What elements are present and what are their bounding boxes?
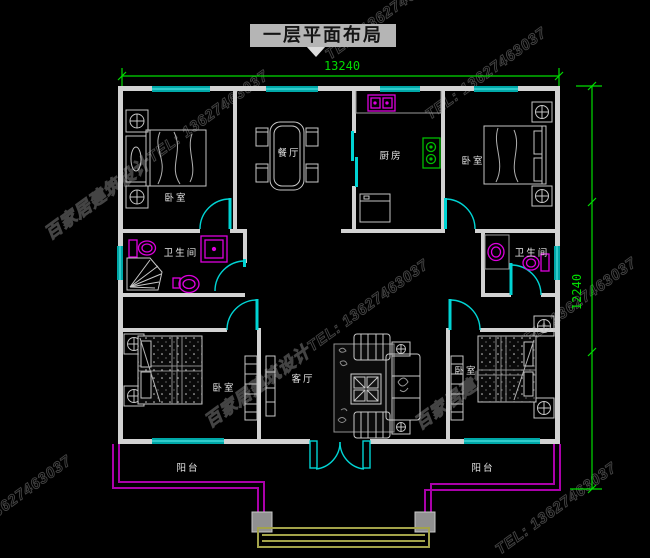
toilet	[129, 240, 156, 257]
corner-shower	[127, 258, 162, 290]
label-dining: 餐厅	[277, 147, 300, 159]
shower-box	[201, 236, 227, 262]
label-bathroom-left: 卫生间	[164, 247, 199, 259]
side-table-bottom	[392, 420, 410, 434]
bedroom-tr-furniture	[484, 102, 552, 206]
bathroom-left-fixtures	[127, 236, 227, 293]
window-bottom-left	[152, 438, 224, 444]
window-bath-right	[554, 246, 560, 280]
kitchen-stove	[423, 138, 440, 168]
door-kitchen-sliding	[351, 131, 358, 187]
label-bedroom-tl: 卧室	[164, 192, 187, 204]
label-bedroom-br: 卧室	[454, 365, 477, 377]
title-pointer-icon	[306, 46, 326, 57]
label-bedroom-bl: 卧室	[212, 382, 235, 394]
kitchen-fridge	[360, 194, 390, 222]
window-top-1	[152, 86, 210, 92]
label-balcony-right: 阳台	[471, 462, 494, 474]
coffee-table	[351, 374, 381, 404]
watermark-phone: TEL: 13627463037	[0, 452, 75, 551]
kitchen-sink	[368, 95, 395, 111]
door-bedroom-bl	[227, 299, 259, 330]
dimension-height-label: 12240	[570, 274, 584, 310]
step-lines	[258, 528, 429, 547]
label-bedroom-tr: 卧室	[461, 155, 484, 167]
window-top-3	[380, 86, 420, 92]
label-balcony-left: 阳台	[176, 462, 199, 474]
label-kitchen: 厨房	[379, 150, 402, 162]
floor-plan-canvas: 一层平面布局 百家居建筑设计 TEL: 13627463037 百家居建筑设计 …	[0, 0, 650, 558]
floor-plan-drawing: 百家居建筑设计 TEL: 13627463037 百家居建筑设计 TEL: 13…	[0, 0, 650, 558]
window-top-2	[266, 86, 318, 92]
window-top-4	[474, 86, 518, 92]
label-living: 客厅	[291, 373, 314, 385]
washbasin	[173, 276, 199, 293]
living-furniture	[266, 334, 420, 438]
window-bath-left	[117, 246, 123, 280]
page-title-text: 一层平面布局	[263, 25, 383, 45]
dimension-width-label: 13240	[324, 59, 360, 73]
page-title: 一层平面布局	[250, 24, 396, 47]
door-entrance-double	[310, 441, 370, 469]
door-bath-left	[215, 259, 246, 291]
entrance-steps	[252, 512, 435, 547]
door-bedroom-tl	[200, 198, 232, 229]
door-bedroom-tr	[444, 198, 475, 229]
door-bedroom-br	[449, 299, 481, 330]
watermark-layer: 百家居建筑设计 TEL: 13627463037 百家居建筑设计 TEL: 13…	[0, 0, 640, 558]
watermark-phone: TEL: 13627463037	[492, 459, 620, 558]
washbasin	[488, 244, 504, 261]
window-bottom-right	[464, 438, 540, 444]
label-bathroom-right: 卫生间	[515, 247, 550, 259]
watermark-phone: TEL: 13627463037	[144, 67, 272, 166]
